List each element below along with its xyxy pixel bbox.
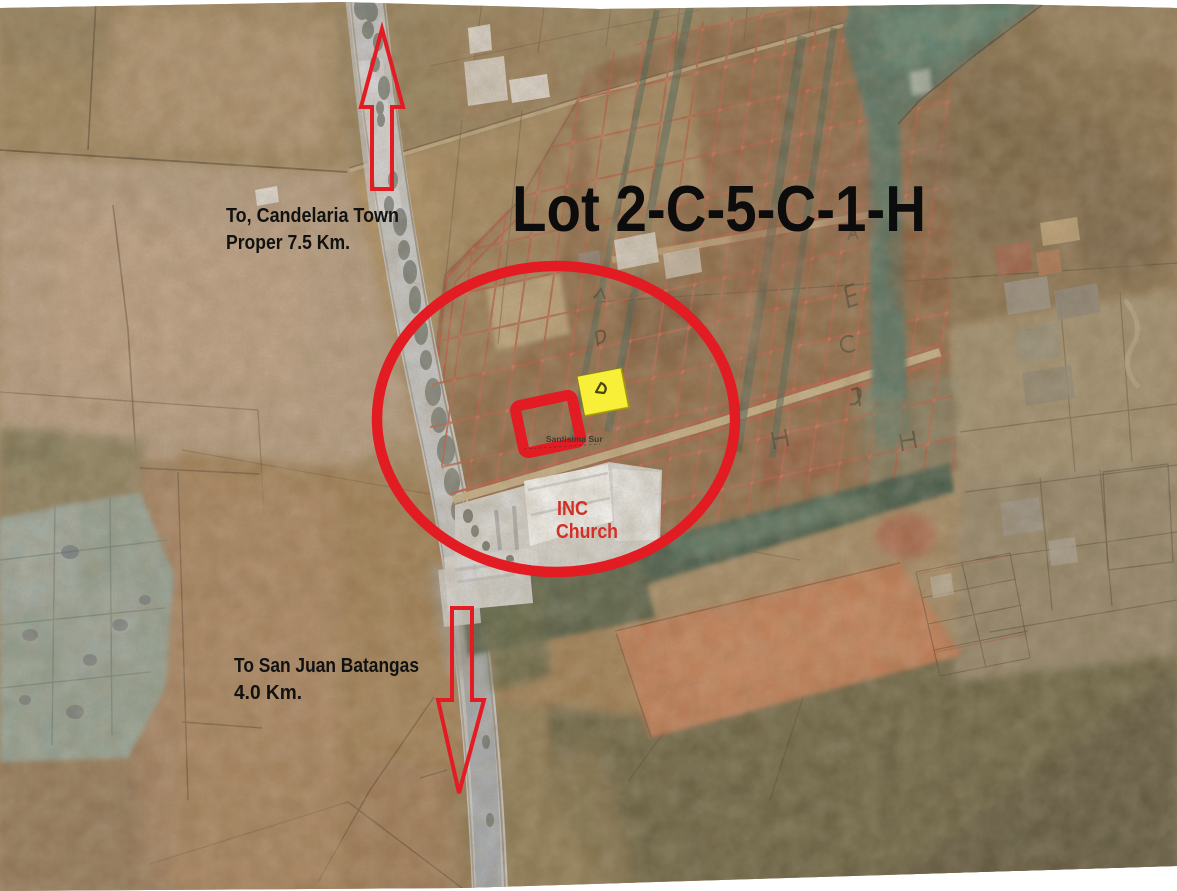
svg-text:To San Juan Batangas: To San Juan Batangas xyxy=(234,654,419,677)
svg-text:4.0 Km.: 4.0 Km. xyxy=(234,681,302,704)
svg-text:Proper 7.5 Km.: Proper 7.5 Km. xyxy=(226,231,350,254)
svg-text:Church: Church xyxy=(556,521,618,543)
svg-text:INC: INC xyxy=(557,498,588,520)
svg-text:Lot 2-C-5-C-1-H: Lot 2-C-5-C-1-H xyxy=(512,172,926,245)
svg-text:To, Candelaria Town: To, Candelaria Town xyxy=(226,204,399,227)
svg-text:Santisima Sur: Santisima Sur xyxy=(546,434,603,444)
